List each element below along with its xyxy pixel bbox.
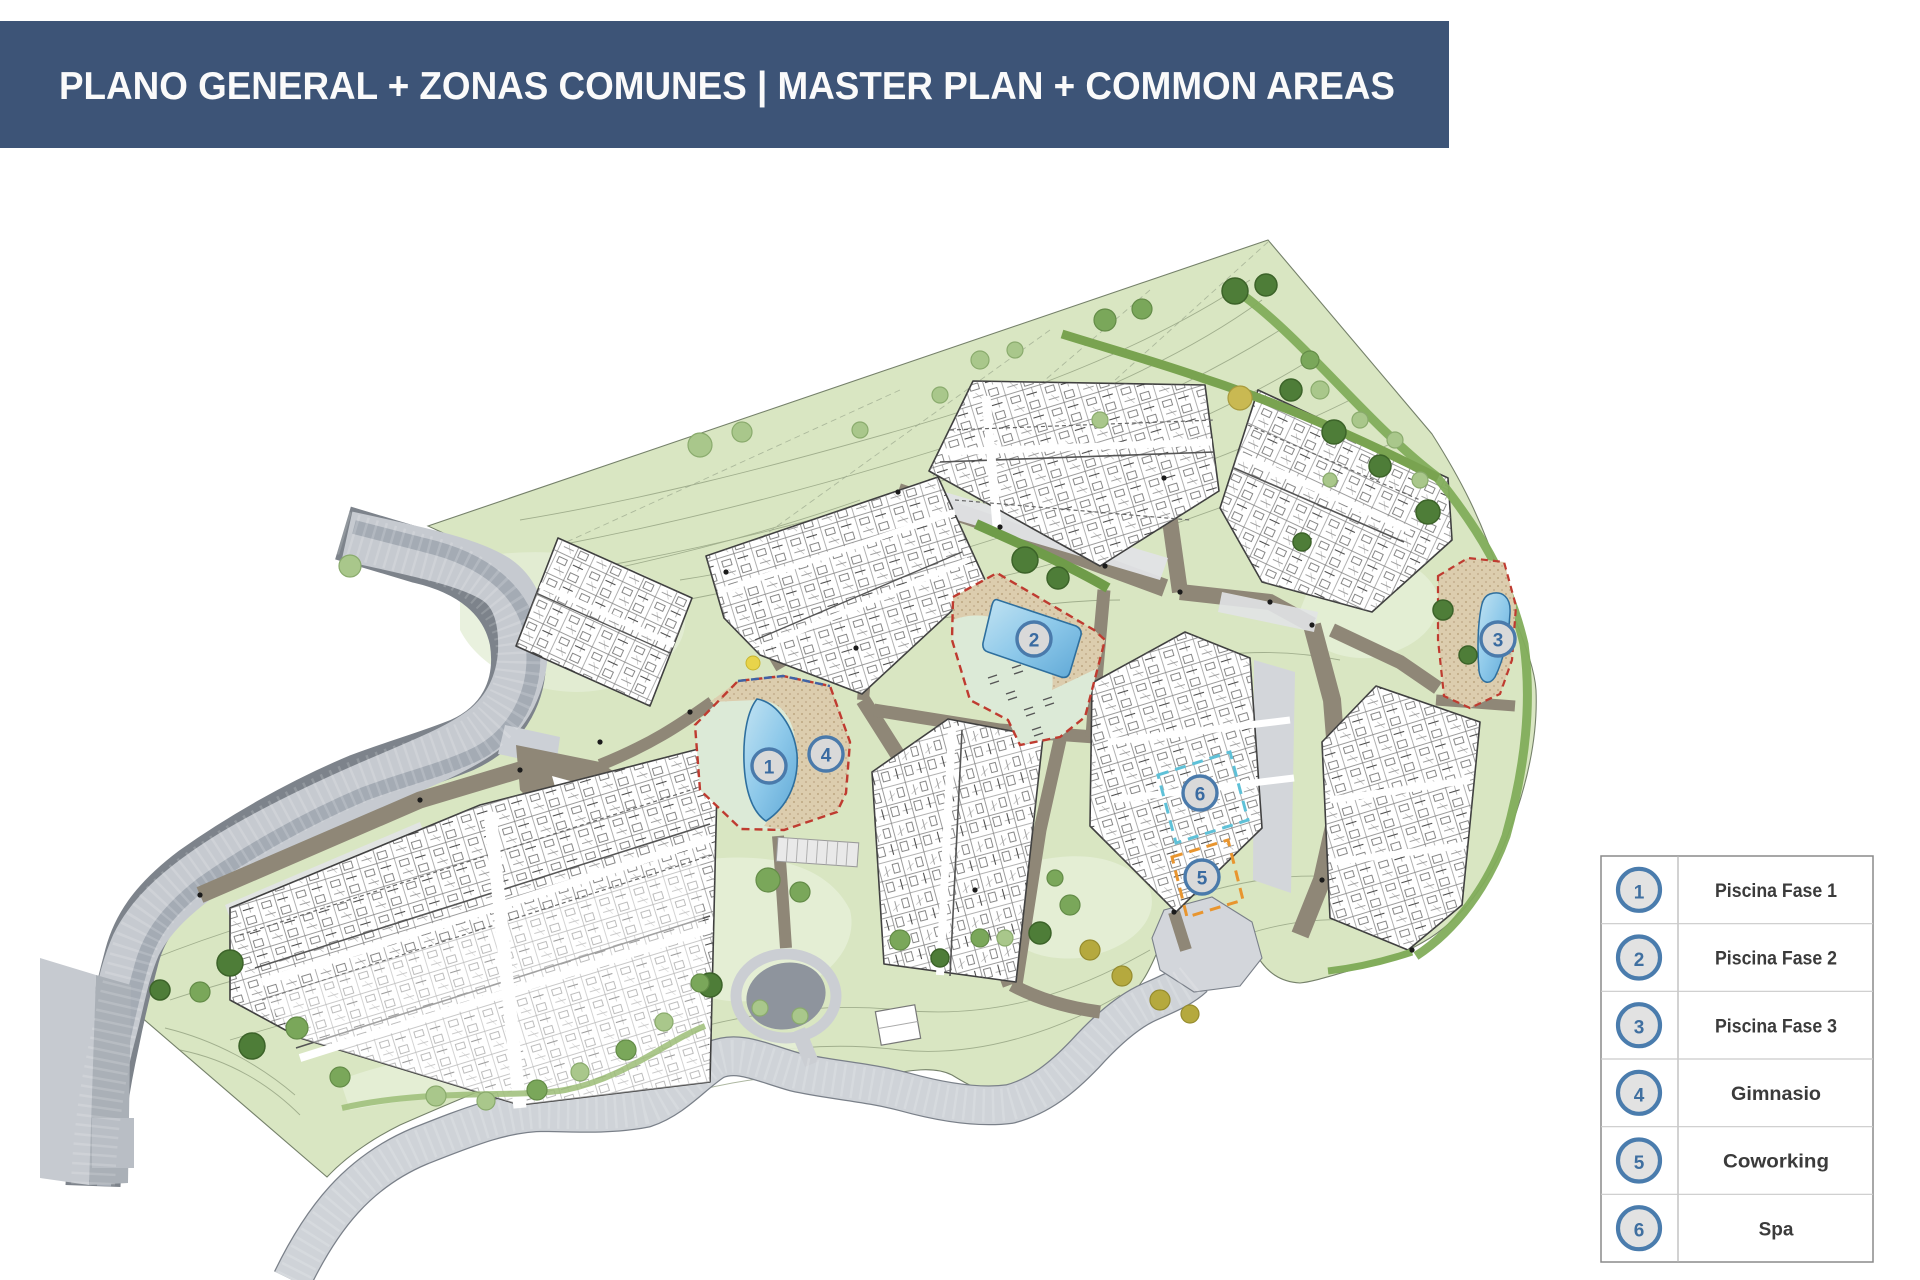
svg-text:3: 3 xyxy=(1634,1018,1645,1039)
svg-text:PLANO GENERAL + ZONAS COMUNES: PLANO GENERAL + ZONAS COMUNES | MASTER P… xyxy=(59,65,1395,108)
svg-text:5: 5 xyxy=(1634,1153,1645,1174)
svg-text:4: 4 xyxy=(1634,1085,1645,1106)
svg-text:6: 6 xyxy=(1195,785,1206,806)
svg-text:5: 5 xyxy=(1197,869,1208,890)
svg-text:2: 2 xyxy=(1029,631,1040,652)
svg-text:Piscina Fase 3: Piscina Fase 3 xyxy=(1715,1016,1837,1037)
svg-text:4: 4 xyxy=(821,746,832,767)
svg-text:Piscina Fase 1: Piscina Fase 1 xyxy=(1715,881,1837,902)
svg-text:Gimnasio: Gimnasio xyxy=(1731,1084,1821,1105)
svg-text:Piscina Fase 2: Piscina Fase 2 xyxy=(1715,949,1837,970)
svg-text:2: 2 xyxy=(1634,950,1645,971)
svg-text:6: 6 xyxy=(1634,1221,1645,1242)
svg-text:1: 1 xyxy=(1634,882,1645,903)
svg-text:Coworking: Coworking xyxy=(1723,1152,1829,1173)
svg-text:1: 1 xyxy=(764,758,775,779)
svg-text:3: 3 xyxy=(1493,631,1504,652)
svg-text:Spa: Spa xyxy=(1759,1219,1794,1240)
